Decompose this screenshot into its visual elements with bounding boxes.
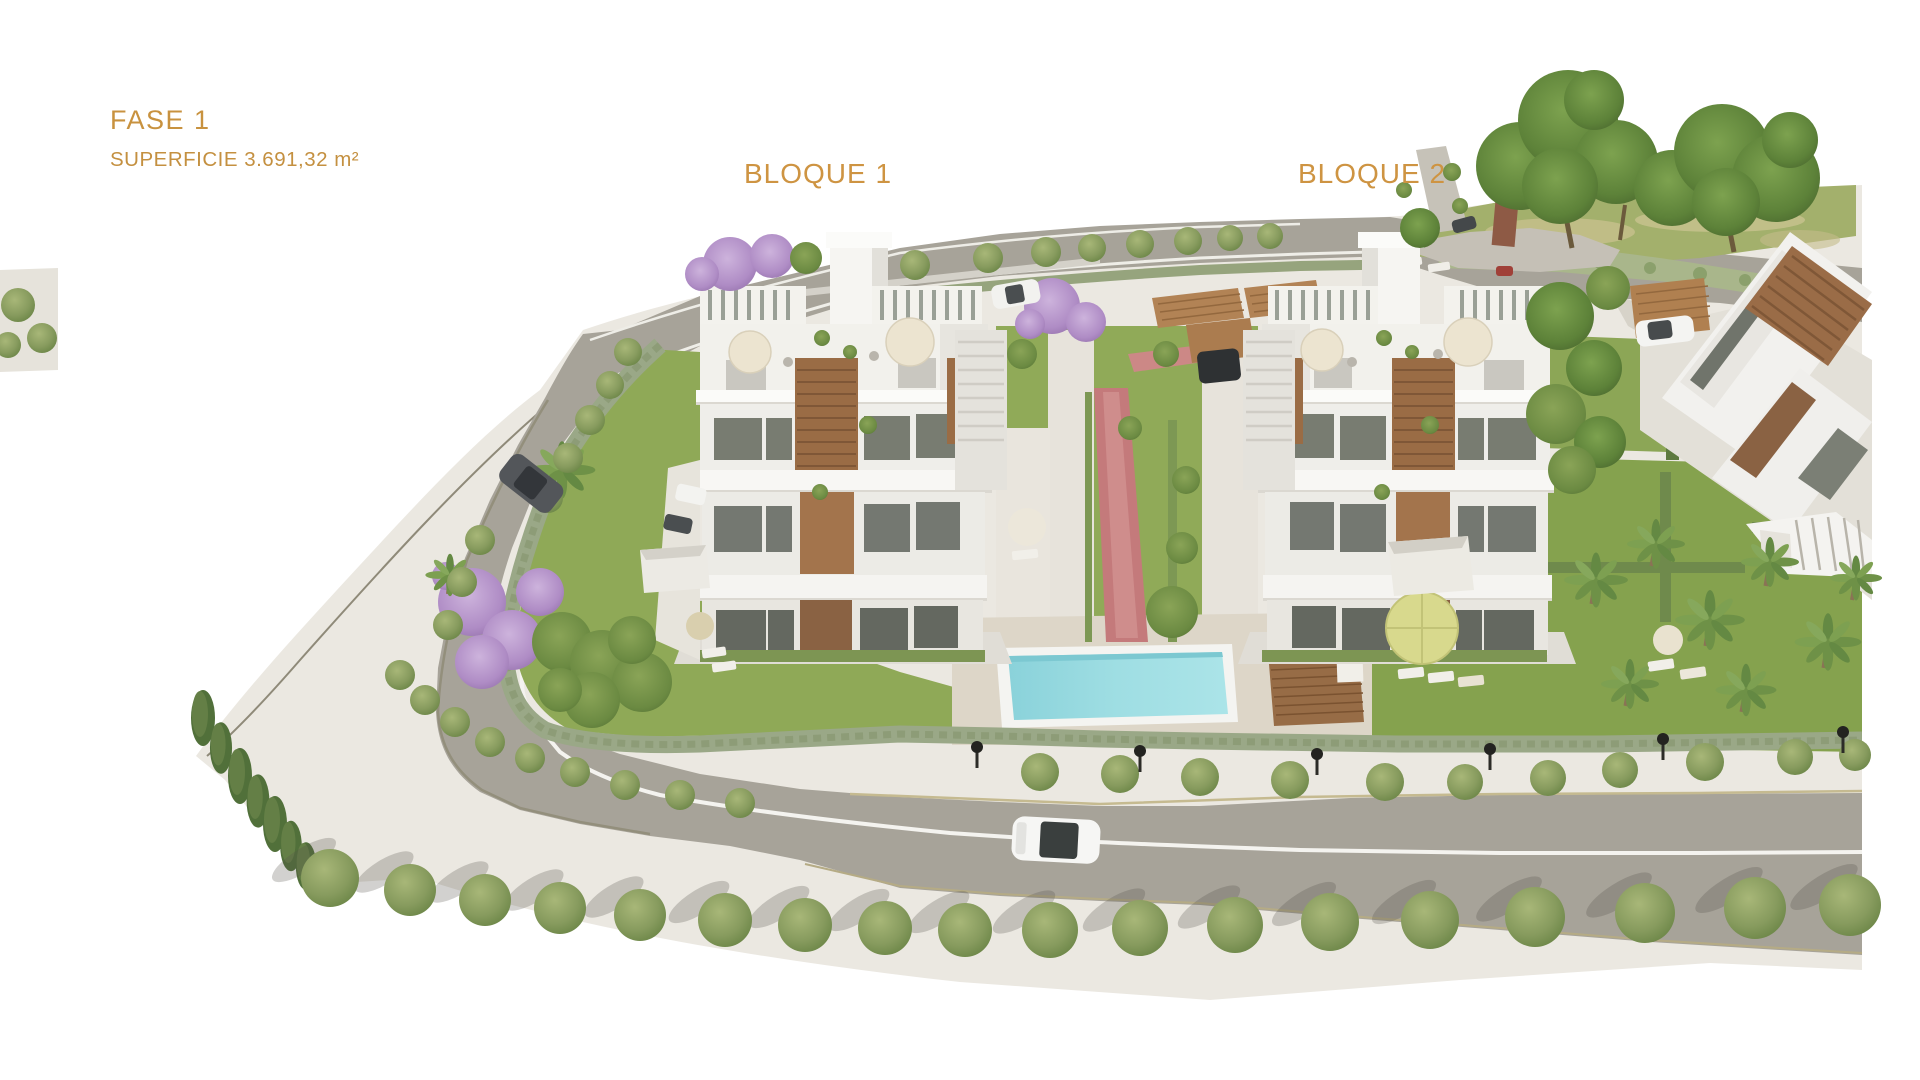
svg-text:BLOQUE 1: BLOQUE 1 xyxy=(744,158,892,189)
svg-text:FASE 1: FASE 1 xyxy=(110,105,211,135)
svg-text:BLOQUE 2: BLOQUE 2 xyxy=(1298,158,1446,189)
svg-text:SUPERFICIE 3.691,32 m²: SUPERFICIE 3.691,32 m² xyxy=(110,148,359,171)
